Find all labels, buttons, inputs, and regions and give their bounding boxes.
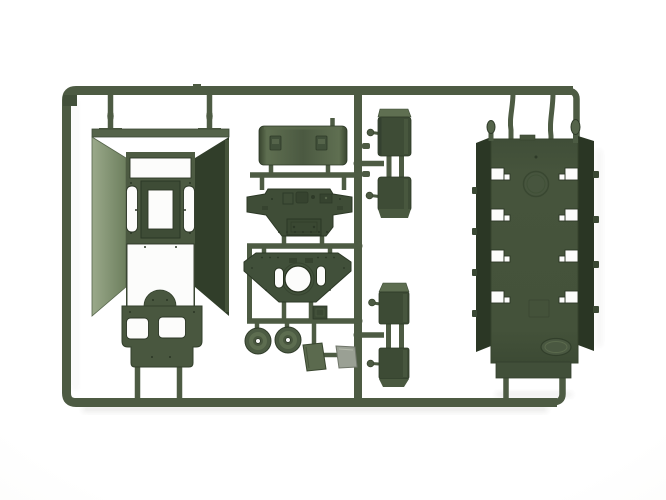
road-wheel (275, 327, 301, 353)
sprue-photo-canvas: Sprue runner frame (0, 0, 666, 500)
slot-hole-right (317, 266, 326, 286)
curved-panel-part: Curved hull roof panel (259, 126, 347, 165)
hull-tub-center-opening (148, 190, 173, 229)
tab-hole-right (159, 317, 186, 338)
turret-ring-hole (285, 266, 311, 292)
hull-tub-left-wall (92, 137, 126, 316)
corner-pin-right (571, 120, 580, 135)
corner-pin-left (487, 121, 495, 134)
deck-panel-right-rail (578, 136, 594, 351)
hull-tub-top-edge (92, 129, 229, 137)
road-wheels: Road wheels (pair) (245, 327, 301, 354)
turret-ring-plate-part: Upper hull plate with turret ring openin… (244, 253, 351, 302)
hull-tub-slot-right (184, 186, 195, 232)
hull-tub-right-wall (195, 137, 229, 316)
frame-corner-gusset (63, 95, 77, 106)
hull-tub-cutout-top (130, 158, 191, 178)
deck-panel-part: Hull deck panel with notched rails (righ… (472, 120, 599, 379)
hull-tub-slot-left (127, 186, 138, 232)
hatch-block-part: Small hatch block (313, 306, 327, 319)
rear-plate-hatch-2 (296, 192, 308, 203)
photo-of-model-sprue: Sprue runner frame (0, 0, 666, 500)
tab-hole-left (127, 318, 149, 339)
slot-hole-left (275, 268, 284, 288)
deck-panel-bottom-tab (496, 362, 571, 378)
gate-stub (193, 84, 201, 89)
deck-panel-left-rail (476, 137, 491, 352)
rear-plate-part: Rear hull plate with hatches (247, 189, 352, 236)
rear-plate-raised-panel (287, 219, 321, 235)
hull-tub-part: Lower hull tub (left) (92, 129, 229, 367)
road-wheel (245, 328, 271, 354)
